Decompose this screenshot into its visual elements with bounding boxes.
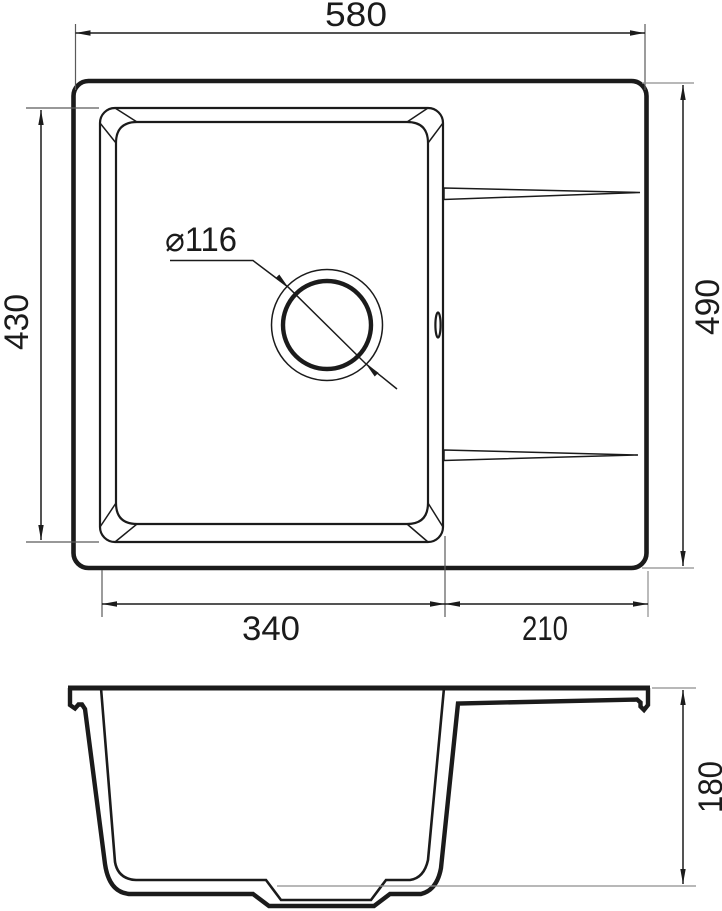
drainboard-groove-bottom	[444, 450, 638, 461]
section-body-hatched	[70, 688, 648, 906]
section-outer-profile	[70, 688, 648, 906]
dim-arrow-icon	[38, 110, 43, 125]
overall-depth-label: 490	[689, 279, 722, 335]
sink-outline-plan	[74, 81, 647, 568]
dim-arrow-icon	[680, 690, 685, 705]
bowl-width-label: 340	[242, 610, 300, 648]
dim-arrow-icon	[633, 601, 648, 606]
dim-arrow-icon	[680, 551, 685, 566]
dim-arrow-icon	[680, 869, 685, 884]
bowl-length-label: 430	[0, 294, 36, 350]
dim-bottom-widths: 340 210	[102, 536, 648, 648]
dim-arrow-icon	[38, 525, 43, 540]
leader-arrow-icon	[275, 274, 289, 288]
dim-section-depth: 180	[277, 688, 722, 886]
dim-arrow-icon	[680, 85, 685, 100]
overflow-slot	[435, 313, 440, 338]
section-depth-label: 180	[692, 761, 722, 813]
drawing-canvas: ⌀116 580 430 490	[0, 0, 722, 911]
dim-arrow-icon	[430, 601, 445, 606]
plan-view: ⌀116 580 430 490	[0, 0, 722, 648]
dim-overall-depth: 490	[642, 83, 722, 568]
dim-arrow-icon	[630, 30, 645, 35]
drainboard-groove-top	[444, 188, 640, 200]
dim-arrow-icon	[76, 30, 91, 35]
drainboard-width-label: 210	[522, 610, 568, 648]
dim-arrow-icon	[445, 601, 460, 606]
drain-diameter-label: ⌀116	[165, 221, 237, 259]
dim-overall-width: 580	[76, 0, 646, 90]
overall-width-label: 580	[325, 0, 387, 34]
dim-arrow-icon	[102, 601, 117, 606]
technical-drawing-sink: ⌀116 580 430 490	[0, 0, 722, 911]
leader-arrow-icon	[364, 362, 378, 376]
dim-bowl-length: 430	[0, 108, 99, 542]
section-view: 180	[68, 688, 722, 906]
